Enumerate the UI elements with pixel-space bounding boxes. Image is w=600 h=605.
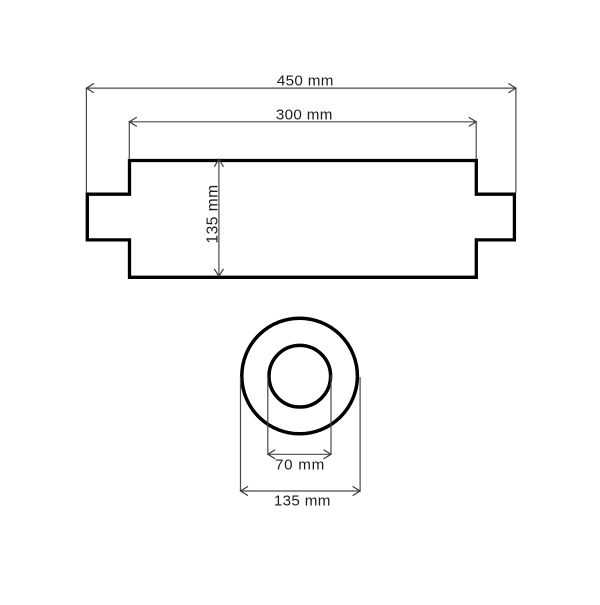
svg-text:300 mm: 300 mm [276,107,333,124]
svg-text:450 mm: 450 mm [277,73,334,90]
svg-text:70 mm: 70 mm [275,456,325,473]
svg-text:135 mm: 135 mm [274,492,331,509]
svg-text:135 mm: 135 mm [205,184,222,243]
